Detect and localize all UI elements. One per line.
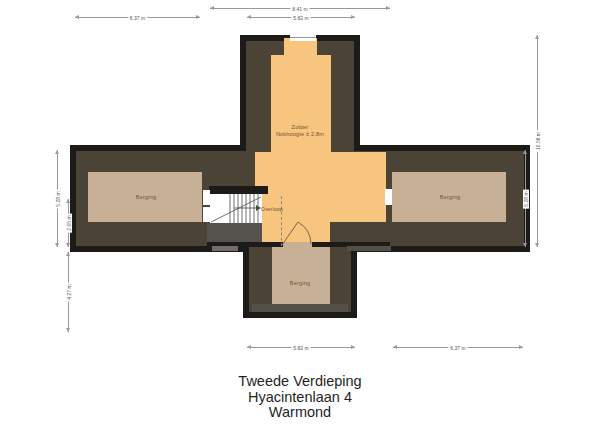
zolder-floor-upper-band: [255, 152, 386, 187]
stair-enclosure-wall: [209, 186, 268, 194]
door-swing-icon: [262, 216, 314, 246]
headroom-dashed-line: [281, 196, 282, 246]
zolder-note: Nokhoogte ± 2.8m: [250, 131, 350, 138]
bottom-wing-floor-strip: [252, 304, 348, 312]
window-top: [290, 35, 316, 41]
dim-right-inner: 5.28 m: [525, 150, 526, 247]
zolder-name: Zolder: [250, 124, 350, 131]
under-stairs-area: [207, 223, 262, 242]
dim-right-inner-label: 5.28 m: [523, 189, 529, 208]
room-label-overloop: Overloop: [258, 206, 286, 213]
dim-left-inner-lower: 4.27 m: [68, 252, 69, 332]
staircase-icon: [210, 194, 262, 223]
dim-left-outer: 5.28 m: [57, 150, 58, 247]
dim-bottom-right-label: 6.37 m: [448, 345, 467, 351]
dim-top-total: 8.41 m: [210, 8, 390, 9]
dim-left-inner-upper-label: 2.05 m: [66, 213, 72, 232]
dim-top-center: 5.82 m: [247, 17, 355, 18]
title-block: Tweede Verdieping Hyacintenlaan 4 Warmon…: [0, 374, 600, 421]
room-label-zolder: Zolder Nokhoogte ± 2.8m: [250, 124, 350, 138]
band-bottom-mark-right: [347, 246, 391, 251]
dim-right-outer-label: 10.56 m: [535, 130, 541, 152]
room-berging-bottom: [272, 247, 330, 307]
floor-title: Tweede Verdieping: [0, 374, 600, 390]
dim-bottom-center: 5.82 m: [247, 347, 355, 348]
staircase: [210, 194, 262, 223]
address-line: Hyacintenlaan 4: [0, 390, 600, 406]
room-label-berging-bottom: Berging: [260, 280, 340, 287]
dim-right-outer: 10.56 m: [537, 35, 538, 247]
dim-bottom-right: 6.37 m: [393, 347, 523, 348]
dim-bottom-center-label: 5.82 m: [291, 345, 310, 351]
dim-top-left: 6.37 m: [75, 17, 200, 18]
dim-top-center-label: 5.82 m: [291, 15, 310, 21]
dim-top-total-label: 8.41 m: [290, 6, 309, 12]
opening-right-wall: [385, 189, 392, 205]
room-label-berging-right: Berging: [410, 194, 490, 201]
dim-left-outer-label: 5.28 m: [55, 189, 61, 208]
dim-left-inner-lower-label: 4.27 m: [66, 282, 72, 301]
city-line: Warmond: [0, 405, 600, 421]
opening-left-wall-lower: [203, 207, 210, 222]
opening-left-wall-upper: [203, 190, 210, 205]
room-label-berging-left: Berging: [106, 194, 186, 201]
floorplan-canvas: Zolder Nokhoogte ± 2.8m Berging Berging …: [0, 0, 600, 424]
dim-top-left-label: 6.37 m: [128, 15, 147, 21]
dim-left-inner-upper: 2.05 m: [68, 199, 69, 247]
window-top-line: [290, 37, 316, 38]
band-bottom-mark-left: [212, 246, 238, 251]
